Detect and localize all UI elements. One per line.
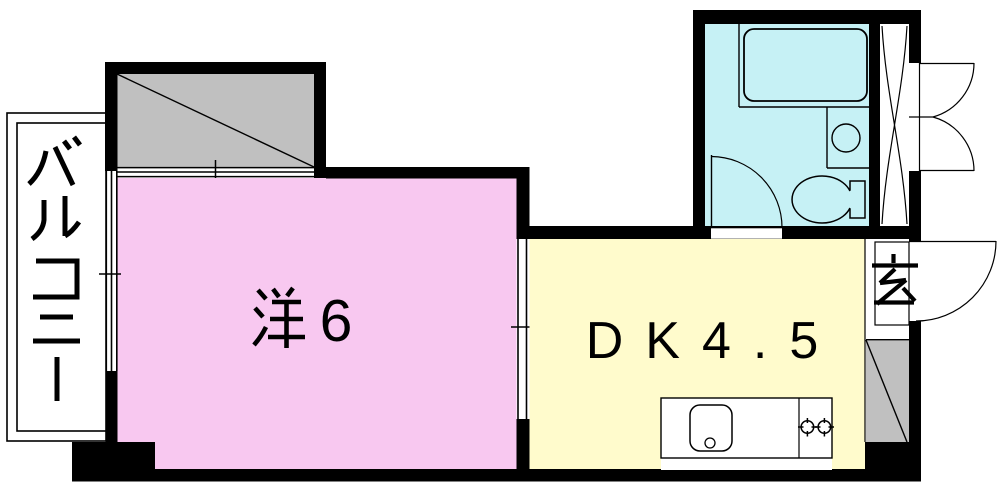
svg-text:6: 6 <box>320 288 353 354</box>
svg-text:DK4.5: DK4.5 <box>586 312 841 370</box>
